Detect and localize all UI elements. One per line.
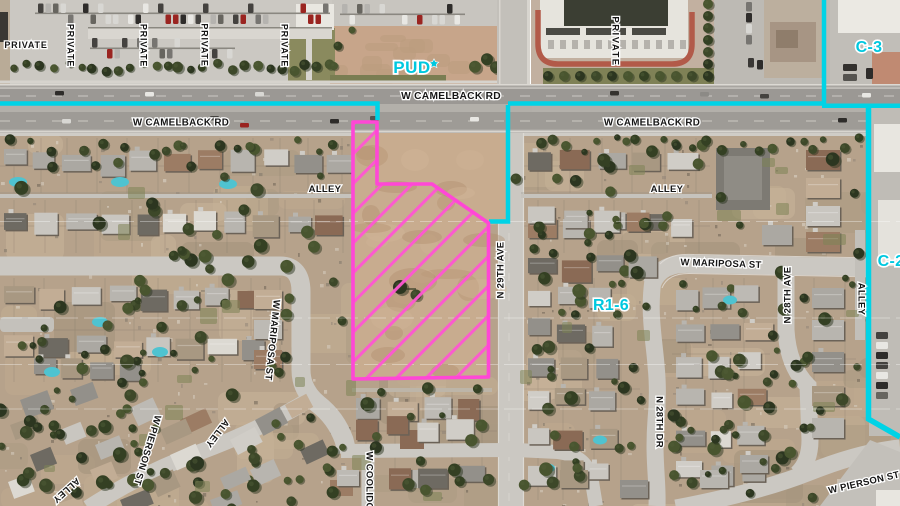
svg-text:PRIVATE: PRIVATE — [139, 24, 149, 67]
svg-text:PRIVATE: PRIVATE — [280, 24, 290, 67]
svg-text:N 28TH DR: N 28TH DR — [653, 396, 664, 448]
svg-text:W CAMELBACK RD: W CAMELBACK RD — [401, 91, 501, 102]
svg-text:PRIVATE: PRIVATE — [4, 40, 47, 50]
svg-text:PRIVATE: PRIVATE — [609, 16, 620, 66]
svg-text:ALLEY: ALLEY — [309, 184, 342, 195]
svg-text:ALLEY: ALLEY — [855, 283, 866, 316]
svg-text:N 29TH AVE: N 29TH AVE — [496, 242, 507, 299]
svg-text:PRIVATE: PRIVATE — [200, 23, 210, 66]
svg-text:N 28TH AVE: N 28TH AVE — [783, 267, 794, 324]
svg-text:W CAMELBACK RD: W CAMELBACK RD — [604, 118, 700, 129]
svg-text:C-2: C-2 — [878, 253, 900, 270]
svg-text:W COOLIDGE ST: W COOLIDGE ST — [363, 452, 374, 506]
svg-text:W CAMELBACK RD: W CAMELBACK RD — [133, 118, 229, 129]
svg-text:PRIVATE: PRIVATE — [66, 24, 76, 67]
svg-text:ALLEY: ALLEY — [651, 184, 684, 195]
svg-text:PUD: PUD — [393, 58, 430, 77]
svg-text:C-3: C-3 — [856, 39, 883, 56]
svg-text:R1-6: R1-6 — [593, 297, 629, 314]
